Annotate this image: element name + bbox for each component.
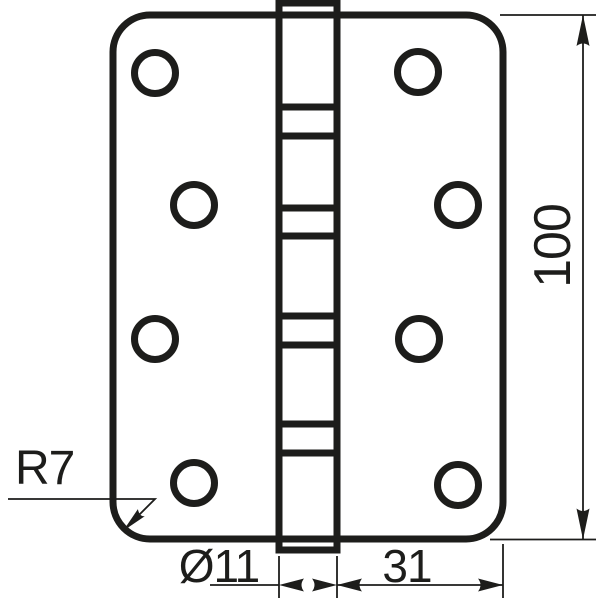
dimension-label-corner-radius: R7 [15,442,74,495]
hinge-drawing-canvas: 100 R7 Ø11 31 [0,0,600,600]
dimension-label-leaf-width: 31 [382,540,431,592]
arrowhead-right [478,579,503,592]
arrowhead-right [312,579,337,592]
arrowhead-left [337,579,362,592]
hinge-technical-drawing: 100 R7 Ø11 31 [0,0,600,600]
dimension-label-barrel-diameter: Ø11 [179,540,260,592]
dimension-label-height: 100 [524,204,582,288]
arrowhead-left [279,579,304,592]
hinge-leaf-plate-outline [113,15,503,539]
arrowhead-up [577,15,590,46]
dimension-leaf-width: 31 [337,540,503,598]
arrowhead-down [577,509,590,540]
